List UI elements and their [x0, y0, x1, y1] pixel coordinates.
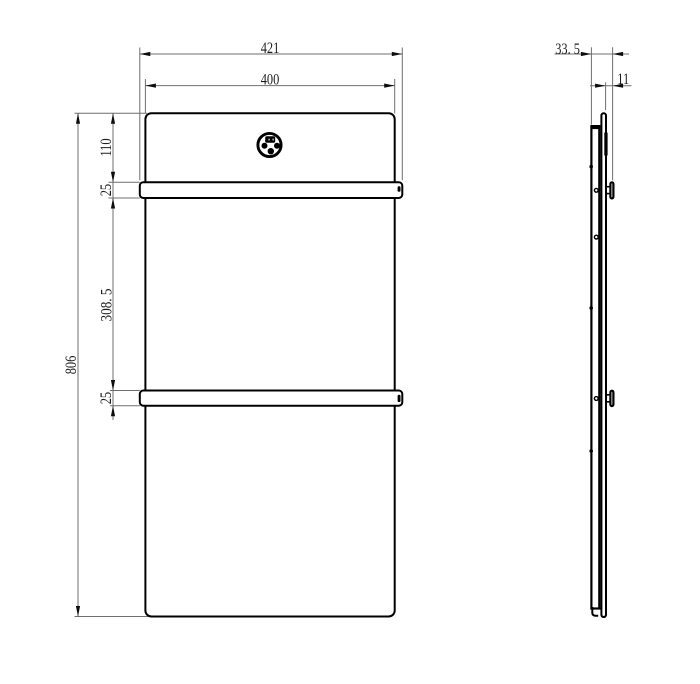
svg-text:806: 806 — [63, 356, 81, 375]
svg-text:421: 421 — [261, 40, 280, 58]
svg-text:25: 25 — [98, 392, 116, 404]
svg-text:400: 400 — [261, 71, 280, 89]
svg-text:110: 110 — [98, 138, 116, 156]
svg-text:308. 5: 308. 5 — [99, 289, 116, 322]
svg-text:25: 25 — [98, 184, 116, 196]
svg-text:11: 11 — [617, 71, 629, 89]
svg-text:33. 5: 33. 5 — [555, 41, 580, 59]
